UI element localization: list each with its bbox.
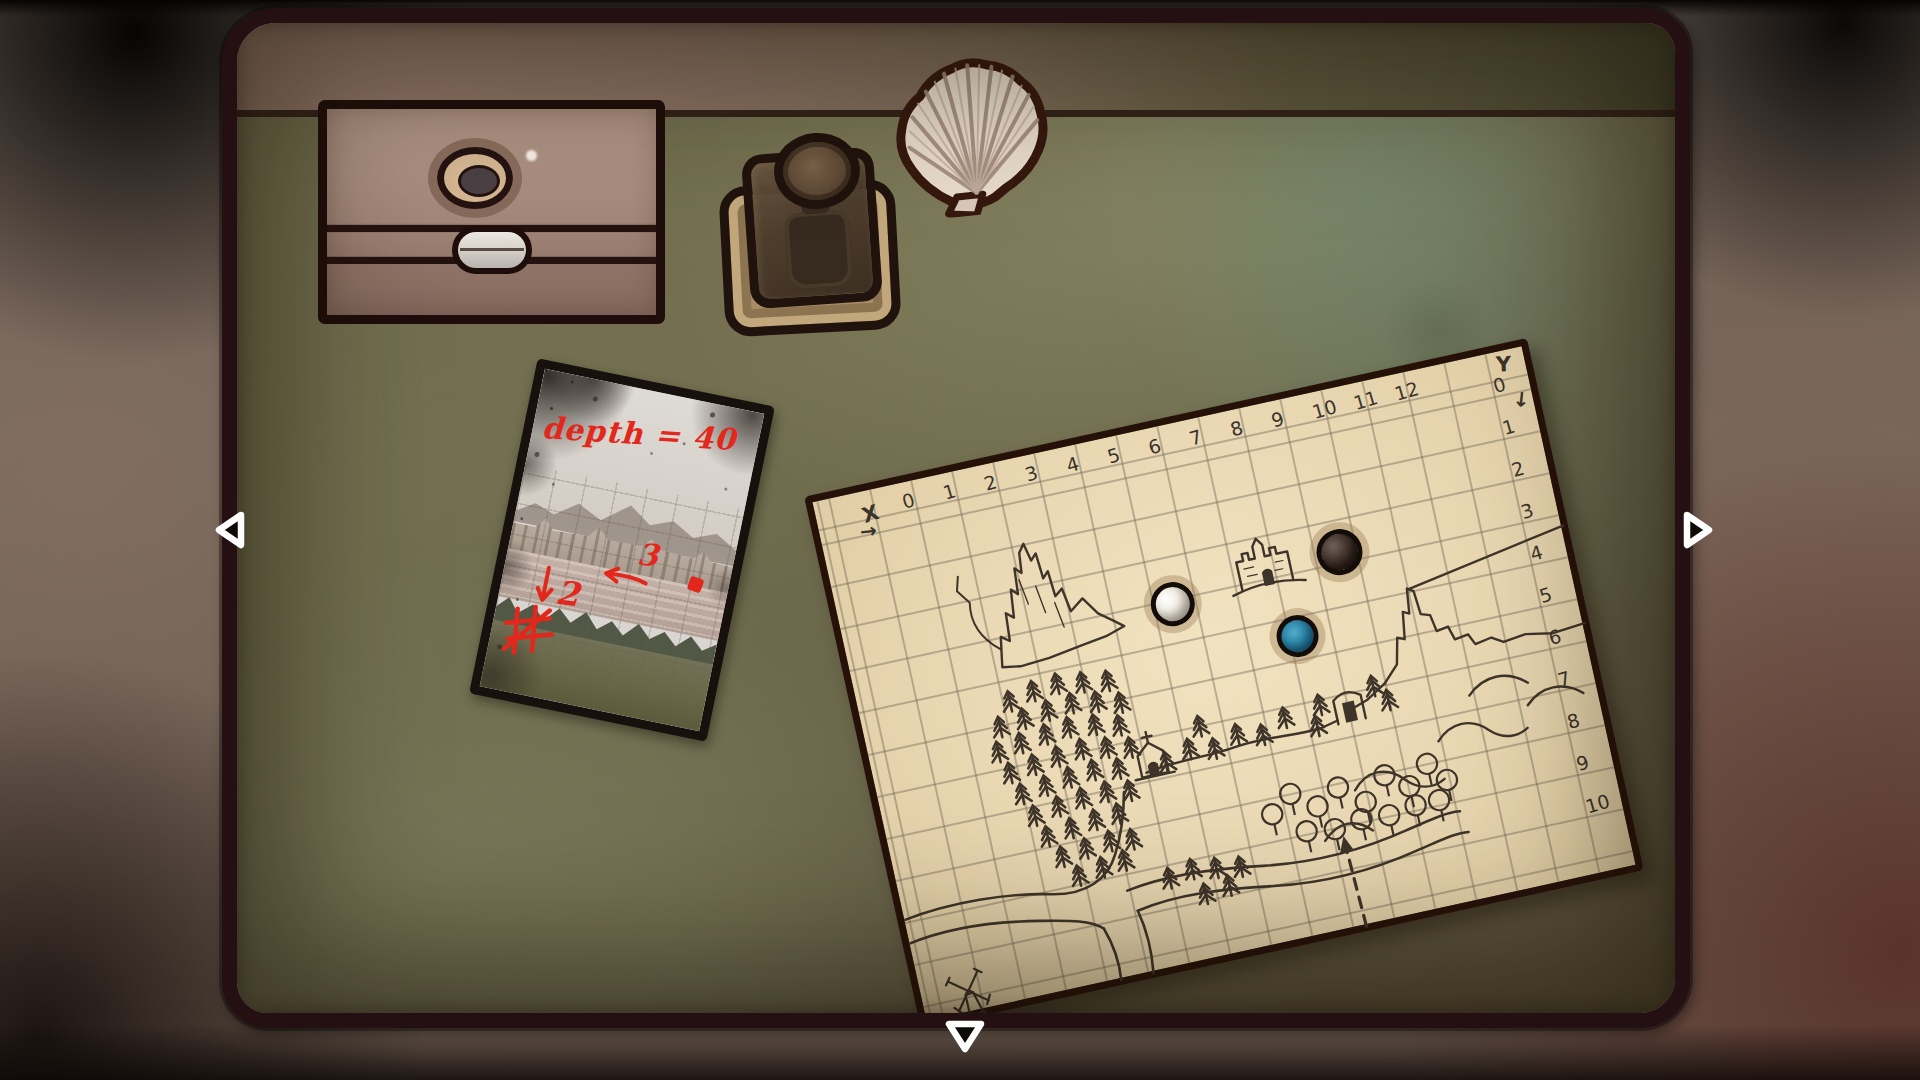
- scallop-shell-icon[interactable]: [876, 36, 1069, 223]
- scene-frame: depth = 40 3 2: [222, 8, 1690, 1028]
- triangle-down-icon: [942, 1016, 988, 1056]
- box-clasp[interactable]: [452, 226, 532, 274]
- navigate-right-button[interactable]: [1678, 508, 1718, 552]
- game-screen: { "nav": { "left": { "icon": "triangle-l…: [0, 0, 1920, 1080]
- note-3: 3: [636, 536, 660, 573]
- triangle-right-icon: [1678, 508, 1718, 552]
- x-axis-arrow-icon: →: [859, 518, 878, 544]
- navigate-left-button[interactable]: [210, 508, 250, 552]
- wooden-box-face: [318, 100, 665, 324]
- glint-icon: [526, 150, 537, 161]
- map-hut: [1332, 690, 1366, 725]
- jar-contents: [784, 209, 853, 289]
- map-cliff: [1366, 553, 1588, 684]
- navigate-down-button[interactable]: [942, 1016, 988, 1056]
- keyhole-center: [458, 165, 500, 197]
- keyhole-icon[interactable]: [437, 147, 513, 209]
- y-axis-arrow-icon: ↓: [1512, 387, 1531, 413]
- map-dashed-route: [1346, 847, 1366, 927]
- map-castle: [1222, 530, 1305, 596]
- wooden-box[interactable]: [318, 100, 665, 324]
- triangle-left-icon: [210, 508, 250, 552]
- crossed-grid-icon: [500, 605, 556, 657]
- map-pine-forest: [977, 603, 1431, 942]
- glass-jar[interactable]: [722, 145, 912, 337]
